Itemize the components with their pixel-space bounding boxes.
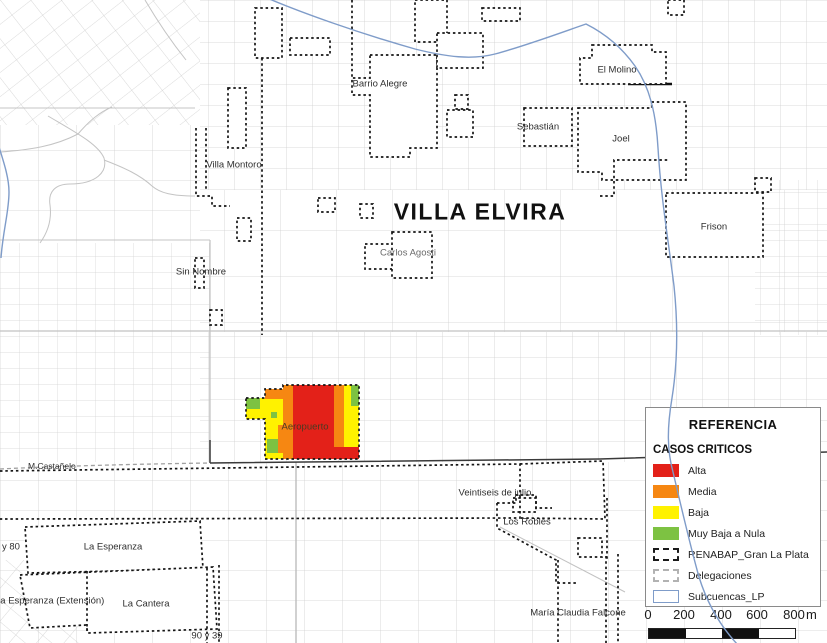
map-label-sebastian: Sebastián bbox=[517, 122, 559, 133]
scale-segment bbox=[722, 629, 759, 638]
legend-item-label: RENABAP_Gran La Plata bbox=[688, 549, 809, 561]
scale-bar: 0 200 400 600 800 m bbox=[634, 607, 827, 643]
map-label-barrio-alegre: Barrio Alegre bbox=[353, 79, 408, 90]
scale-tick: 800 bbox=[783, 607, 805, 622]
map-label-carlos-agosti: Carlos Agosti bbox=[380, 248, 436, 259]
map-label-la-esperanza: La Esperanza bbox=[84, 542, 143, 553]
baja-color-swatch bbox=[653, 506, 679, 519]
legend-item-baja: Baja bbox=[653, 502, 820, 523]
map-label-esperanza-extension: La Esperanza (Extensión) bbox=[0, 596, 104, 607]
legend-item-label: Delegaciones bbox=[688, 570, 752, 582]
map-label-y-80: y 80 bbox=[2, 542, 20, 553]
map-label-90-y-39: 90 y 39 bbox=[191, 631, 222, 642]
legend-panel: REFERENCIA CASOS CRITICOS Alta Media Baj… bbox=[645, 407, 821, 607]
map-canvas: REFERENCIA CASOS CRITICOS Alta Media Baj… bbox=[0, 0, 827, 643]
legend-item-alta: Alta bbox=[653, 460, 820, 481]
legend-item-label: Subcuencas_LP bbox=[688, 591, 764, 603]
map-label-maria-claudia-falcone: María Claudia Falcone bbox=[530, 608, 626, 619]
scale-segment bbox=[759, 629, 796, 638]
map-label-sin-nombre: Sin Nombre bbox=[176, 267, 226, 278]
alta-color-swatch bbox=[653, 464, 679, 477]
muy-baja-color-swatch bbox=[653, 527, 679, 540]
subcuencas-outline-swatch bbox=[653, 590, 679, 603]
map-label-veintiseis-de-julio: Veintiseis de julio bbox=[459, 488, 532, 499]
legend-item-label: Baja bbox=[688, 507, 709, 519]
map-label-la-cantera: La Cantera bbox=[122, 599, 169, 610]
legend-item-subcuencas: Subcuencas_LP bbox=[653, 586, 820, 607]
scale-tick: 600 bbox=[746, 607, 768, 622]
media-color-swatch bbox=[653, 485, 679, 498]
map-label-el-molino: El Molino bbox=[597, 65, 636, 76]
legend-item-delegaciones: Delegaciones bbox=[653, 565, 820, 586]
renabap-polygon-joel bbox=[578, 102, 686, 180]
map-label-villa-montoro: Villa Montoro bbox=[206, 160, 261, 171]
legend-item-media: Media bbox=[653, 481, 820, 502]
scale-tick: 0 bbox=[644, 607, 651, 622]
legend-item-renabap: RENABAP_Gran La Plata bbox=[653, 544, 820, 565]
legend-item-muy-baja: Muy Baja a Nula bbox=[653, 523, 820, 544]
legend-item-label: Media bbox=[688, 486, 717, 498]
map-label-los-robles: Los Robles bbox=[503, 517, 551, 528]
map-label-joel: Joel bbox=[612, 134, 629, 145]
scale-segment bbox=[686, 629, 723, 638]
scale-segment bbox=[649, 629, 686, 638]
scale-bar-segments bbox=[648, 628, 796, 639]
scale-unit: m bbox=[806, 607, 817, 622]
map-label-aeropuerto: Aeropuerto bbox=[281, 422, 328, 433]
legend-title: REFERENCIA bbox=[646, 417, 820, 432]
map-label-m-castanelo: M.Castañelo bbox=[28, 461, 76, 471]
legend-subtitle: CASOS CRITICOS bbox=[653, 444, 820, 456]
map-title: VILLA ELVIRA bbox=[394, 199, 567, 226]
scale-tick: 200 bbox=[673, 607, 695, 622]
legend-item-label: Muy Baja a Nula bbox=[688, 528, 765, 540]
scale-tick: 400 bbox=[710, 607, 732, 622]
delegaciones-outline-swatch bbox=[653, 569, 679, 582]
renabap-outline-swatch bbox=[653, 548, 679, 561]
map-label-frison: Frison bbox=[701, 222, 727, 233]
legend-item-label: Alta bbox=[688, 465, 706, 477]
